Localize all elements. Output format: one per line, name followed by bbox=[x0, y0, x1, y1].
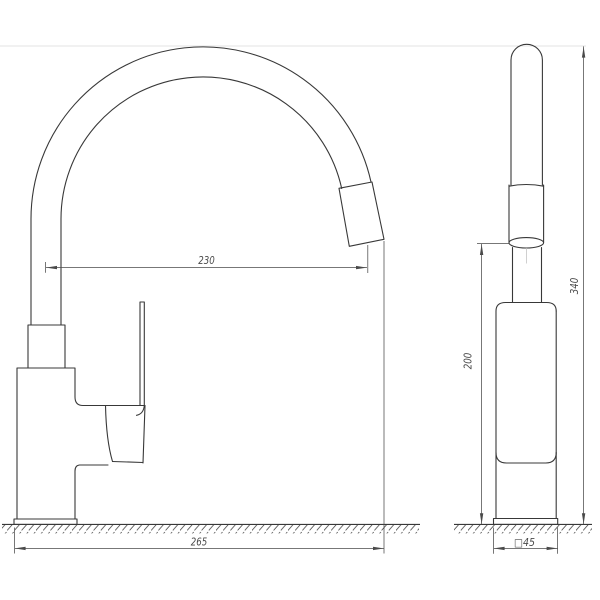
dim-45-arrow-right bbox=[547, 547, 558, 550]
dim-230-arrow-left bbox=[46, 266, 57, 269]
drawing-canvas: 230 265 200 340 □45 bbox=[0, 0, 600, 600]
aerator-outlet-ellipse bbox=[509, 238, 544, 248]
faucet-technical-drawing: 230 265 200 340 □45 bbox=[0, 0, 600, 600]
handle-bottom-edge bbox=[113, 462, 144, 463]
body-front-seam bbox=[496, 453, 556, 464]
body-front-sides bbox=[496, 311, 556, 519]
handle-front-curve bbox=[106, 406, 113, 462]
dim-265-label: 265 bbox=[191, 537, 208, 549]
riser-collar bbox=[28, 325, 65, 368]
body-front-top bbox=[496, 303, 556, 312]
base-plate-front bbox=[494, 519, 558, 525]
dim-265-arrow-left bbox=[15, 547, 26, 550]
dimension-outlet-height: 200 bbox=[463, 244, 510, 525]
dimension-overall-height: 340 bbox=[569, 46, 585, 524]
body-outline bbox=[17, 368, 145, 519]
dim-45-arrow-left bbox=[494, 547, 505, 550]
dim-200-label: 200 bbox=[463, 352, 475, 369]
dim-45-label: □45 bbox=[514, 537, 535, 549]
front-view bbox=[494, 44, 558, 524]
spout-outer-curve bbox=[31, 47, 371, 325]
dim-230-arrow-right bbox=[356, 266, 367, 269]
lever-joint-curve bbox=[137, 406, 145, 416]
body-lower-step bbox=[75, 465, 108, 519]
nozzle-collar-top bbox=[509, 185, 544, 187]
ground-hatch-right bbox=[454, 525, 592, 533]
riser-tube-front bbox=[511, 44, 542, 185]
dimension-overall-depth: 265 bbox=[15, 241, 384, 554]
dim-200-arrow-down bbox=[480, 513, 483, 524]
ground-surface bbox=[2, 524, 592, 533]
dim-340-arrow-up bbox=[582, 47, 585, 58]
side-view bbox=[14, 47, 384, 525]
spout-inner-curve bbox=[61, 77, 342, 325]
handle-lever bbox=[140, 302, 144, 406]
dimension-spout-reach: 230 bbox=[45, 255, 367, 273]
dim-230-label: 230 bbox=[198, 255, 215, 267]
dim-340-label: 340 bbox=[569, 277, 581, 294]
handle-back-edge bbox=[143, 406, 145, 464]
dim-340-arrow-down bbox=[582, 513, 585, 524]
dim-200-arrow-up bbox=[480, 244, 483, 255]
lower-tube-front bbox=[513, 248, 542, 303]
nozzle bbox=[339, 182, 384, 246]
base-plate-side bbox=[14, 519, 77, 524]
nozzle-collar-sides bbox=[509, 185, 544, 243]
dim-265-arrow-right bbox=[373, 547, 384, 550]
ground-hatch-left bbox=[2, 525, 419, 533]
